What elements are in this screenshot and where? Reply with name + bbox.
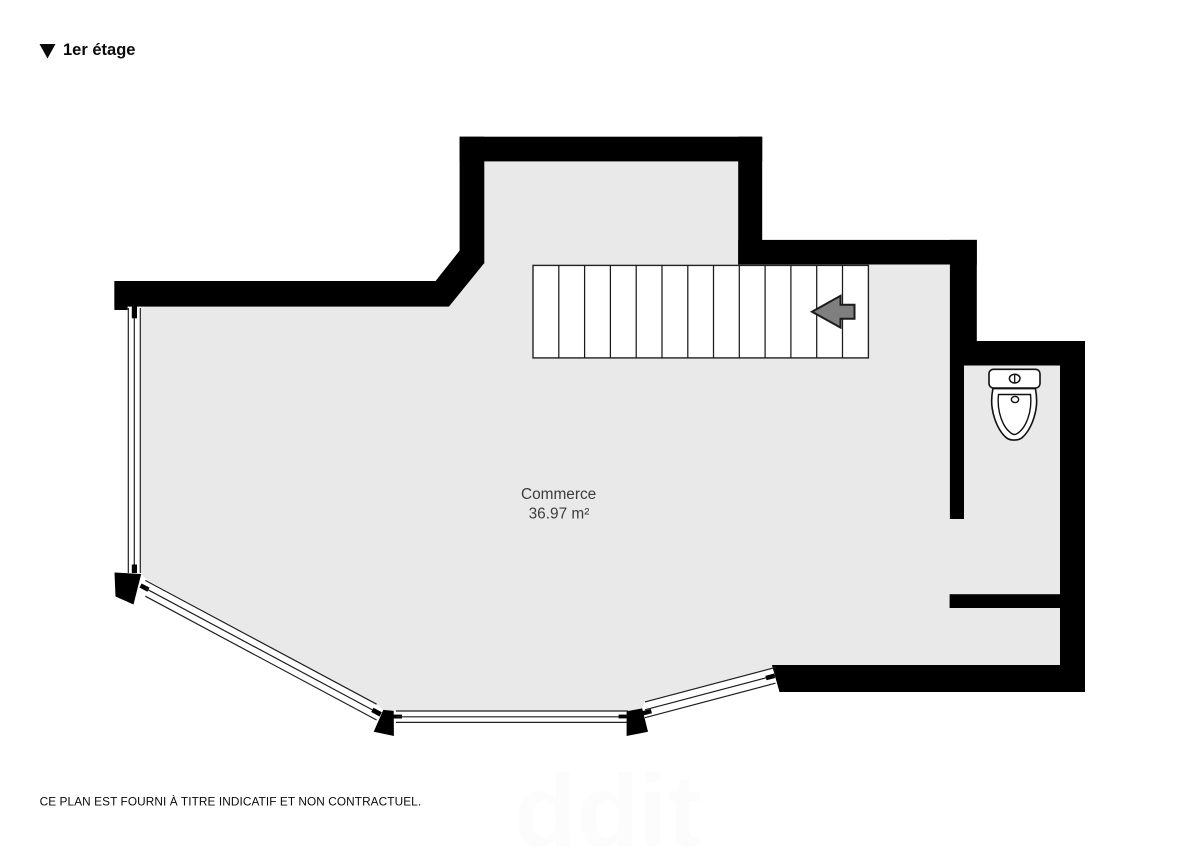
svg-text:1er étage: 1er étage [63,41,135,59]
svg-text:ddit: ddit [515,754,702,848]
svg-text:36.97 m²: 36.97 m² [529,506,590,523]
svg-text:Commerce: Commerce [521,486,596,503]
svg-text:CE PLAN EST FOURNI À TITRE IND: CE PLAN EST FOURNI À TITRE INDICATIF ET … [40,795,422,809]
